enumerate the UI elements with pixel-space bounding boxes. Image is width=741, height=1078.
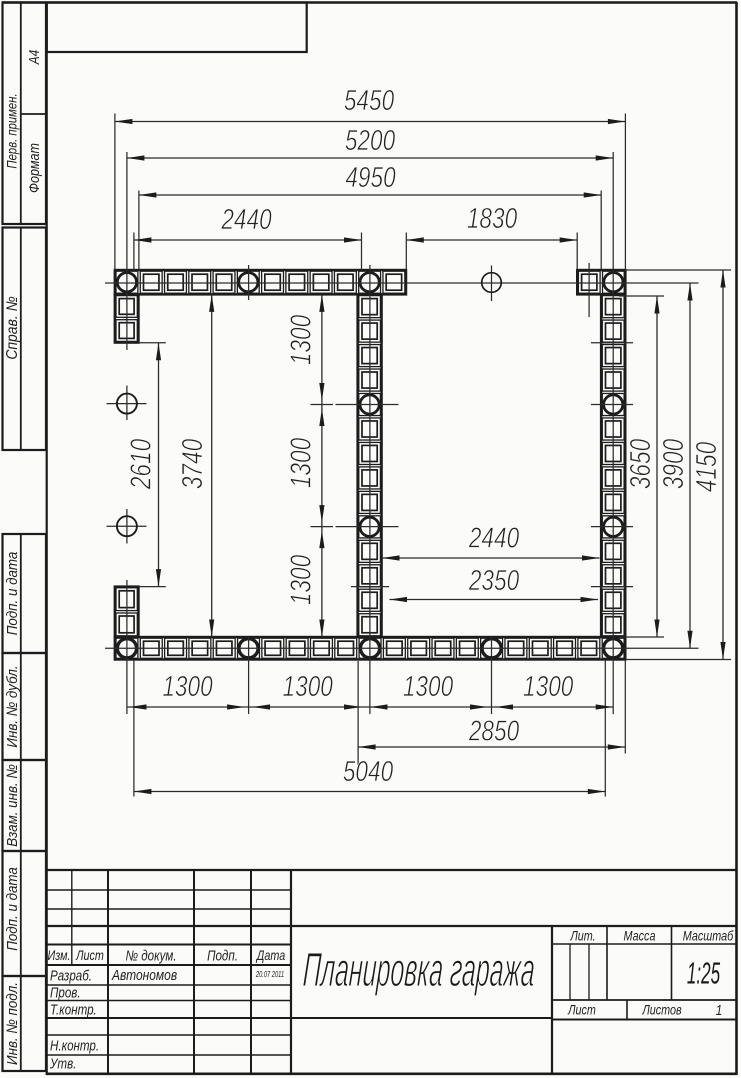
svg-text:1830: 1830 [467,201,518,234]
svg-text:Утв.: Утв. [49,1055,76,1072]
svg-text:1300: 1300 [284,314,317,365]
svg-text:2440: 2440 [468,521,520,554]
svg-text:5040: 5040 [343,754,394,787]
svg-text:2610: 2610 [124,438,157,490]
svg-text:Изм.: Изм. [47,948,70,963]
svg-text:Подп. и дата: Подп. и дата [4,867,21,951]
svg-text:2350: 2350 [468,563,520,596]
svg-text:Лист: Лист [75,948,104,963]
svg-text:Инв. № дубл.: Инв. № дубл. [4,665,21,747]
svg-text:Подп. и дата: Подп. и дата [4,552,21,636]
svg-text:5200: 5200 [345,123,396,156]
svg-text:№ докум.: № докум. [125,947,176,964]
svg-text:Планировка гаража: Планировка гаража [302,943,537,997]
svg-text:Разраб.: Разраб. [50,967,92,984]
svg-text:Т.контр.: Т.контр. [50,1001,97,1018]
svg-text:3650: 3650 [623,438,656,489]
svg-text:Листов: Листов [641,1003,682,1018]
svg-text:1: 1 [716,1002,722,1019]
svg-text:Формат: Формат [26,143,42,193]
svg-text:Лист: Лист [567,1003,596,1018]
svg-text:Масштаб: Масштаб [683,929,734,944]
svg-text:2440: 2440 [220,202,272,235]
svg-text:Лит.: Лит. [569,929,595,944]
svg-text:2850: 2850 [468,714,520,747]
svg-text:Пров.: Пров. [50,984,81,1001]
svg-text:Инв. № подл.: Инв. № подл. [4,982,21,1065]
svg-text:Дата: Дата [255,948,285,963]
svg-text:Справ. №: Справ. № [5,296,22,359]
svg-text:Н.контр.: Н.контр. [50,1037,99,1054]
svg-text:А4: А4 [26,50,42,65]
svg-text:Автономов: Автономов [111,967,177,984]
svg-text:Подп.: Подп. [207,947,238,964]
svg-text:5450: 5450 [344,83,395,116]
svg-text:1300: 1300 [283,669,334,702]
svg-text:3740: 3740 [175,438,208,489]
svg-text:Взам. инв. №: Взам. инв. № [4,764,21,847]
svg-text:4150: 4150 [689,441,722,492]
svg-text:1300: 1300 [162,669,213,702]
svg-text:1:25: 1:25 [687,956,720,991]
svg-text:Масса: Масса [624,929,656,944]
svg-text:1300: 1300 [284,437,317,488]
svg-text:3900: 3900 [656,438,689,489]
svg-text:1300: 1300 [523,669,574,702]
svg-text:20.07 2011: 20.07 2011 [255,971,284,979]
svg-text:4950: 4950 [345,160,396,193]
svg-text:1300: 1300 [284,554,317,605]
svg-text:1300: 1300 [403,669,454,702]
svg-text:Перв. примен.: Перв. примен. [4,93,19,168]
